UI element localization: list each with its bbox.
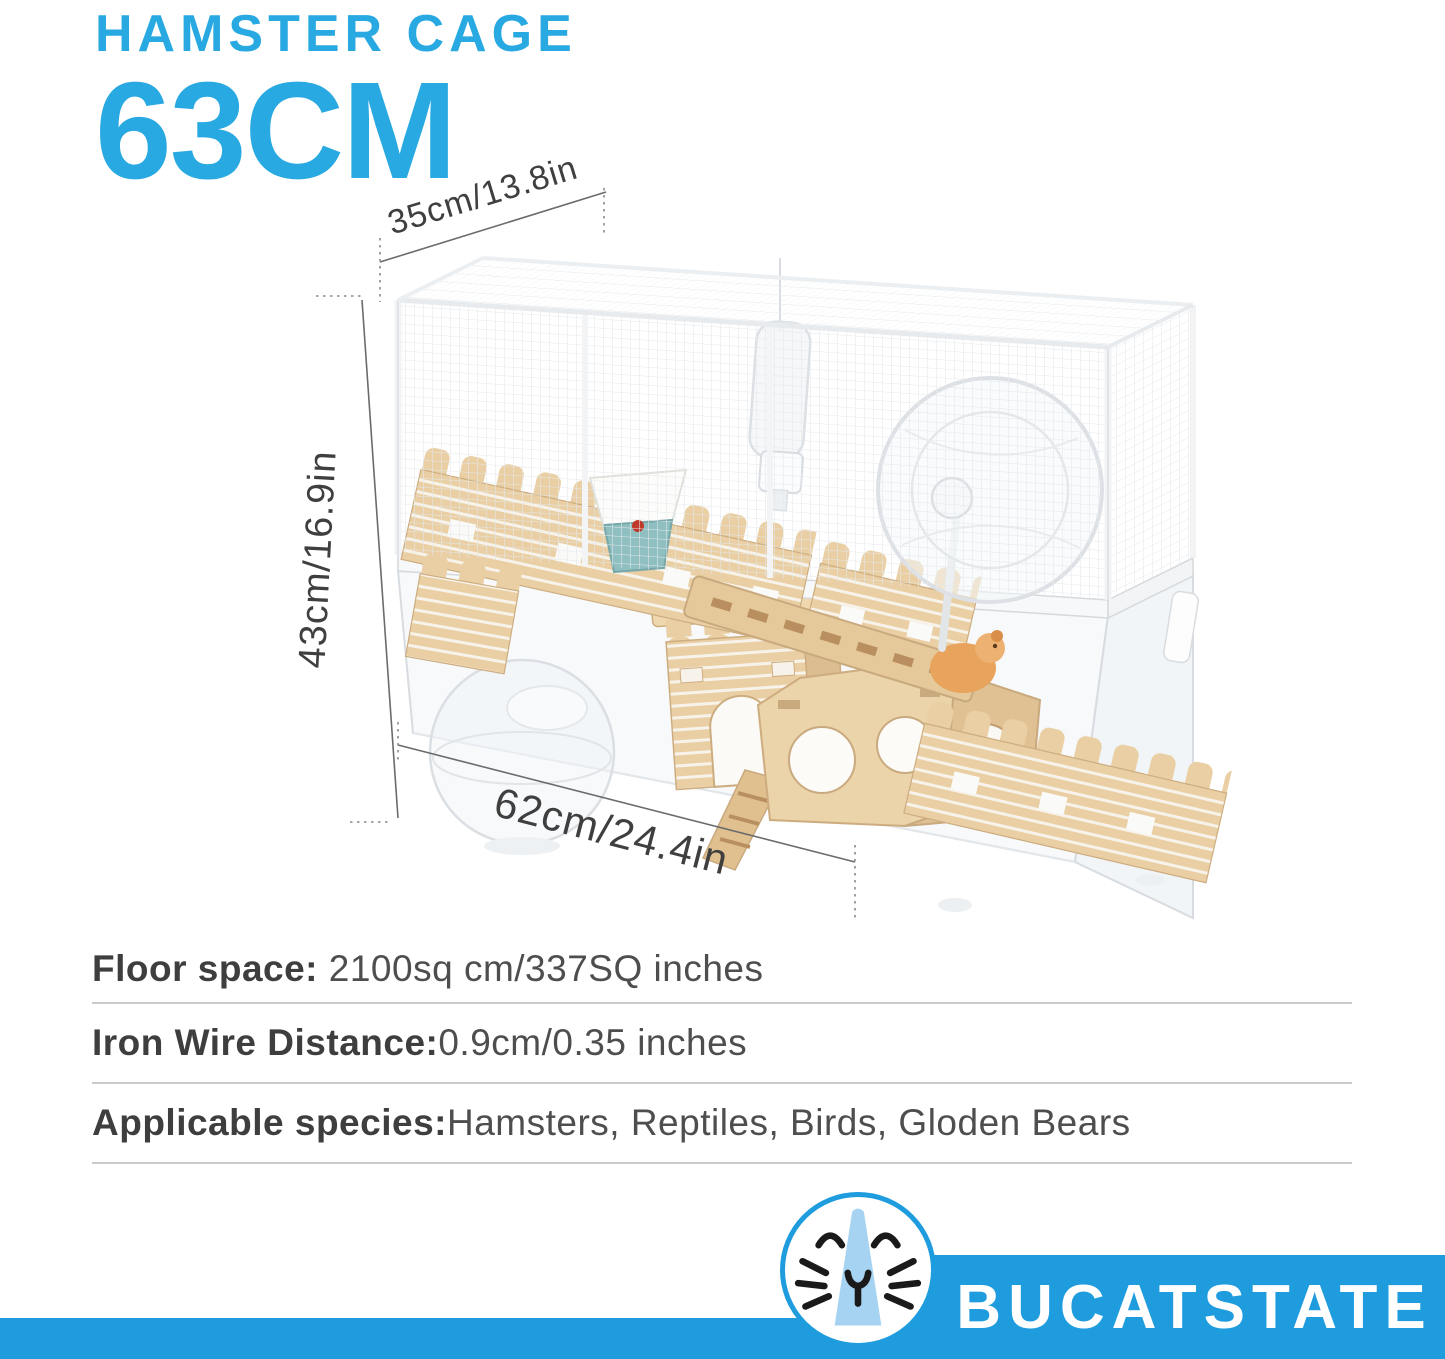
brand-logo bbox=[780, 1192, 936, 1348]
wire-cage bbox=[398, 258, 1193, 600]
castle-fence-left-small bbox=[406, 552, 523, 674]
brand-wordmark: BUCATSTATE bbox=[950, 1255, 1439, 1359]
brand-band-strip bbox=[0, 1318, 848, 1359]
bin-foot bbox=[1135, 874, 1165, 886]
spec-label: Applicable species: bbox=[92, 1102, 447, 1144]
dimension-height: 43cm/16.9in bbox=[291, 296, 398, 822]
spec-row-floor-space: Floor space: 2100sq cm/337SQ inches bbox=[92, 936, 1352, 1004]
hamster-face-icon bbox=[785, 1197, 931, 1343]
bin-foot bbox=[938, 898, 972, 912]
spec-value: 2100sq cm/337SQ inches bbox=[318, 948, 763, 990]
spec-label: Iron Wire Distance: bbox=[92, 1022, 438, 1064]
cage-right-mesh bbox=[1108, 305, 1193, 600]
spec-row-species: Applicable species:Hamsters, Reptiles, B… bbox=[92, 1084, 1352, 1164]
product-infographic: HAMSTER CAGE 63CM bbox=[0, 0, 1445, 1359]
dim-height-label: 43cm/16.9in bbox=[291, 449, 344, 669]
spec-list: Floor space: 2100sq cm/337SQ inches Iron… bbox=[92, 936, 1352, 1164]
dim-width-top-label: 35cm/13.8in bbox=[383, 149, 582, 243]
spec-label: Floor space: bbox=[92, 948, 318, 990]
spec-row-wire-distance: Iron Wire Distance:0.9cm/0.35 inches bbox=[92, 1004, 1352, 1084]
dim-depth-label: 62cm/24.4in bbox=[490, 778, 734, 883]
spec-value: Hamsters, Reptiles, Birds, Gloden Bears bbox=[447, 1102, 1131, 1144]
cage-front-mesh bbox=[398, 300, 1108, 600]
tunnel-hole bbox=[789, 727, 855, 793]
spec-value: 0.9cm/0.35 inches bbox=[438, 1022, 747, 1064]
